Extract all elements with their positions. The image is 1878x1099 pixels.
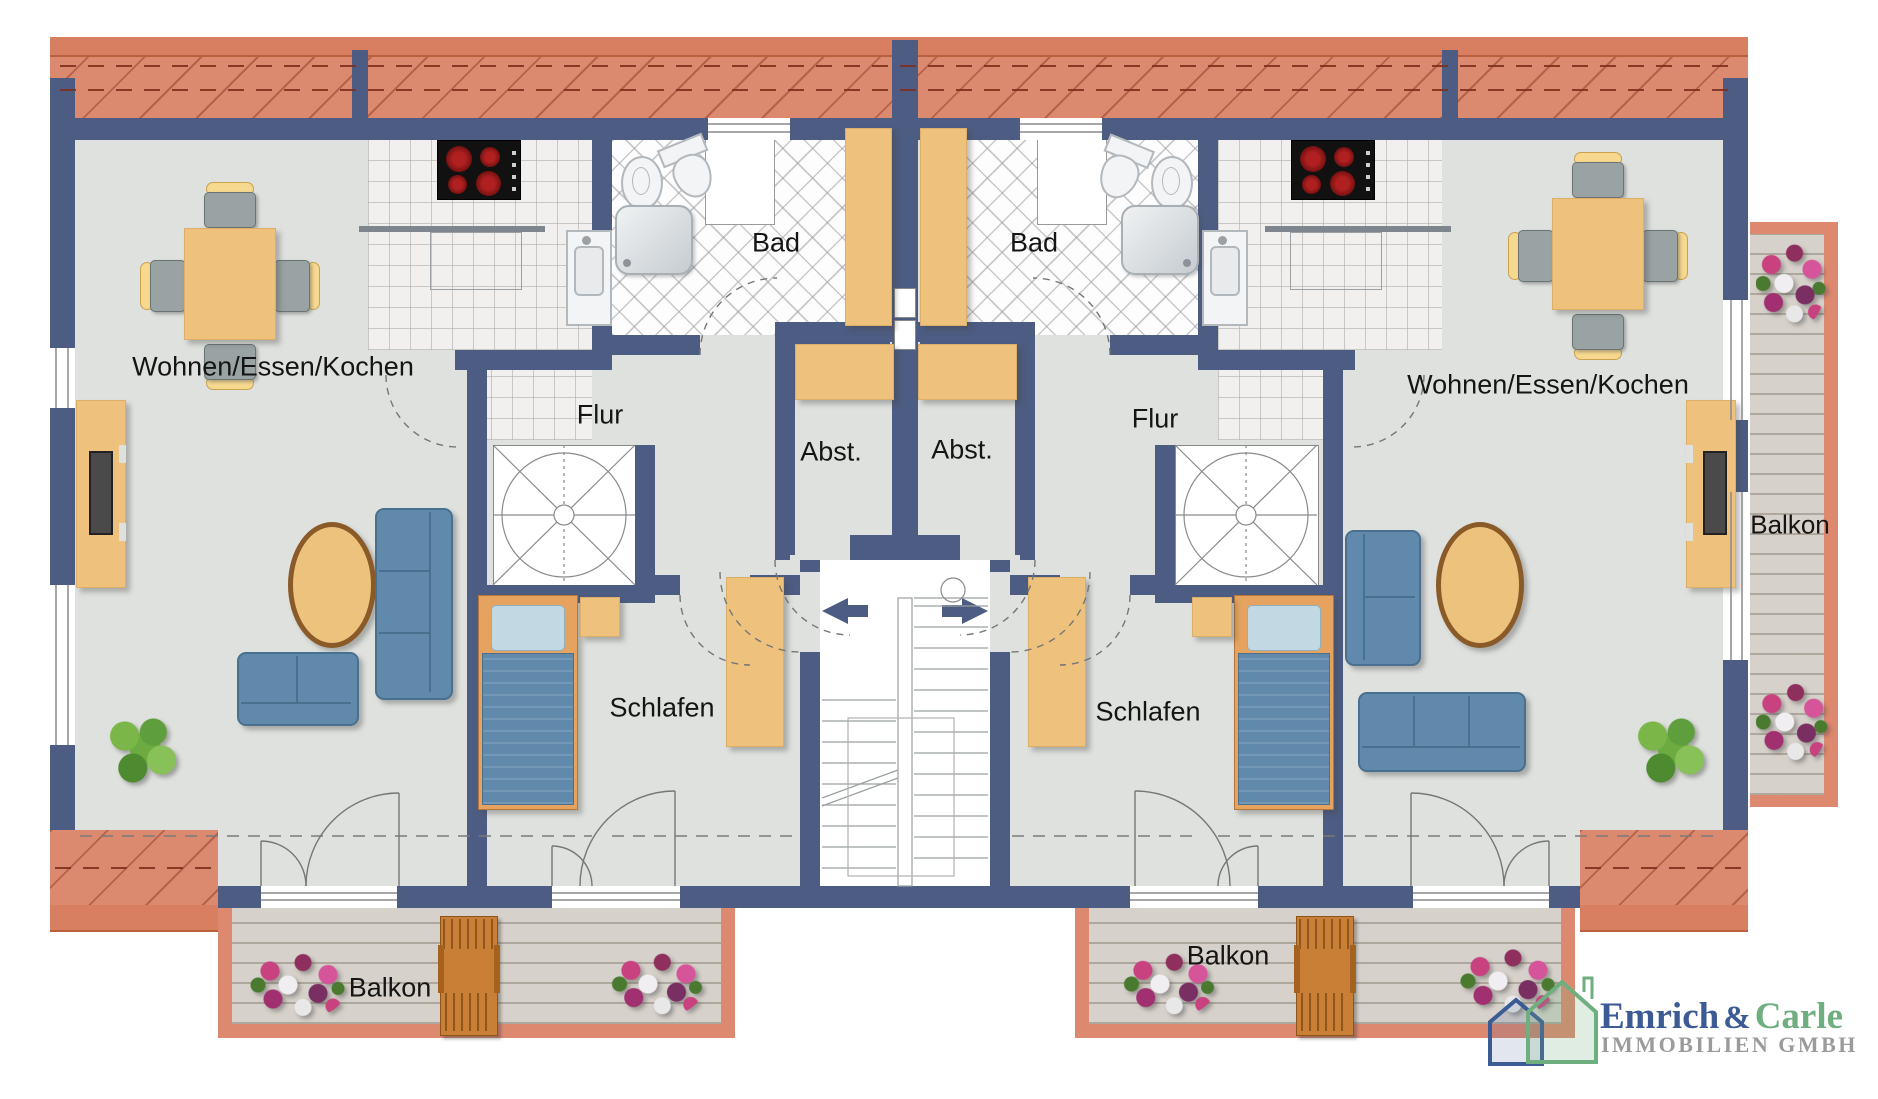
wall-left xyxy=(50,140,75,886)
window-bottom-living-left xyxy=(261,886,397,908)
sideboard-left xyxy=(76,400,126,588)
counter-outline-left xyxy=(430,232,522,290)
floorplan-canvas: Wohnen/Essen/Kochen Wohnen/Essen/Kochen … xyxy=(0,0,1878,1099)
room-label-bedroom-right: Schlafen xyxy=(1095,697,1200,728)
kitchen-sink-right xyxy=(1202,230,1248,326)
room-label-hall-left: Flur xyxy=(577,400,624,431)
wall-bedroom-top-right-a xyxy=(1130,575,1155,595)
sideboard-right xyxy=(1686,400,1736,588)
roof-pier xyxy=(1723,78,1748,140)
chair-icon xyxy=(204,192,256,228)
logo-name-secondary: Carle xyxy=(1755,996,1843,1037)
wall-stairwell-left-b xyxy=(800,652,820,908)
sofa-3seat-right xyxy=(1358,692,1526,772)
kitchen-tiles-right-lower xyxy=(1218,370,1340,440)
vent-shaft xyxy=(894,320,916,350)
room-label-storage-right: Abst. xyxy=(931,435,993,466)
wall-kitchen-hall-left xyxy=(455,350,592,370)
flower-box xyxy=(1756,236,1826,331)
sofa-2seat-right xyxy=(1345,530,1421,666)
wall-entry-top-b xyxy=(850,535,960,560)
wall-entry-top-c xyxy=(1020,535,1035,560)
wall-stairwell-right-b xyxy=(990,652,1010,908)
wall-stairwell-right-a xyxy=(990,560,1010,572)
room-label-balcony-right: Balkon xyxy=(1187,941,1270,972)
wall-bath-bottom-right-a xyxy=(1110,335,1198,355)
wardrobe-bedroom-right xyxy=(1028,577,1086,747)
roof-corner-right xyxy=(1580,830,1748,930)
door-bottom-bedroom-right xyxy=(1130,886,1258,908)
counter-outline-right xyxy=(1290,232,1382,290)
logo-name-primary: Emrich xyxy=(1600,996,1719,1037)
room-label-hall-right: Flur xyxy=(1132,404,1179,435)
wardrobe-bedroom-left xyxy=(726,577,784,747)
skylight-square-right xyxy=(1175,445,1319,587)
kitchen-tiles-left-lower xyxy=(470,370,592,440)
window-bottom-living-right xyxy=(1413,886,1549,908)
wardrobe-bath-left xyxy=(845,128,892,326)
logo-wordmark: Emrich&Carle xyxy=(1600,998,1843,1035)
door-bottom-bedroom-left xyxy=(552,886,680,908)
sofa-2seat-left xyxy=(237,652,359,726)
wall-storage-right-side xyxy=(1015,322,1035,555)
logo-ampersand: & xyxy=(1719,1000,1755,1036)
plant-icon xyxy=(1628,712,1710,792)
flower-box xyxy=(1458,945,1558,1017)
chair-icon xyxy=(1572,314,1624,350)
dining-table-left xyxy=(184,228,276,340)
skylight-square-left xyxy=(493,445,637,587)
arrow-left-icon-shaft xyxy=(848,605,868,617)
flower-box xyxy=(1756,676,1828,768)
window-top-bath-left xyxy=(708,118,790,140)
bath-sink-right xyxy=(1151,156,1193,210)
bed-right xyxy=(1234,595,1334,810)
deck-chair-left xyxy=(440,916,498,1036)
bed-left xyxy=(478,595,578,810)
wall-bath-bottom-left-a xyxy=(612,335,700,355)
kitchen-sink-left xyxy=(566,230,612,326)
shower-right xyxy=(1121,205,1199,275)
arrow-right-icon-shaft xyxy=(942,605,962,617)
house-chimney xyxy=(1584,978,1592,999)
arrow-right-icon xyxy=(962,598,988,624)
room-label-balcony-side: Balkon xyxy=(1750,510,1830,541)
closet-storage-right xyxy=(918,344,1017,400)
plant-icon xyxy=(100,712,182,792)
wardrobe-bath-right xyxy=(920,128,967,326)
roof-pier xyxy=(1442,50,1458,140)
logo-subtitle: IMMOBILIEN GMBH xyxy=(1601,1034,1858,1056)
roof-pier xyxy=(50,78,75,140)
flower-box xyxy=(610,950,705,1018)
room-label-bedroom-left: Schlafen xyxy=(609,693,714,724)
bath-sink-left xyxy=(621,156,663,210)
wall-stairwell-left-a xyxy=(800,560,820,572)
nightstand-right xyxy=(1192,597,1232,637)
window-top-bath-right xyxy=(1020,118,1102,140)
vent-shaft xyxy=(894,288,916,318)
room-label-storage-left: Abst. xyxy=(800,437,862,468)
arrow-left-icon xyxy=(822,598,848,624)
wall-bedroom-top-left-a xyxy=(655,575,680,595)
closet-storage-left xyxy=(795,344,894,400)
nightstand-left xyxy=(580,597,620,637)
roof-corner-left xyxy=(50,830,218,930)
room-label-bath-left: Bad xyxy=(752,228,800,259)
wall-storage-left-side xyxy=(775,322,795,555)
wall-entry-top-a xyxy=(775,535,790,560)
chair-icon xyxy=(274,260,310,312)
chair-icon xyxy=(1518,230,1554,282)
dining-table-right xyxy=(1552,198,1644,310)
window-left-lower xyxy=(50,585,75,745)
wall-kitchen-hall-right xyxy=(1218,350,1355,370)
deck-chair-right xyxy=(1296,916,1354,1036)
cooktop-left xyxy=(437,140,521,200)
oval-table-right xyxy=(1436,522,1524,648)
roof-pier xyxy=(352,50,368,140)
window-left-upper xyxy=(50,348,75,408)
room-label-bath-right: Bad xyxy=(1010,228,1058,259)
shower-left xyxy=(615,205,693,275)
wall-skylight-left-right xyxy=(1155,445,1175,595)
chair-icon xyxy=(150,260,186,312)
chair-icon xyxy=(1572,162,1624,198)
chair-icon xyxy=(1642,230,1678,282)
cooktop-right xyxy=(1291,140,1375,200)
wall-skylight-right-left xyxy=(635,445,655,595)
room-label-living-right: Wohnen/Essen/Kochen xyxy=(1407,370,1689,401)
room-label-balcony-left: Balkon xyxy=(349,973,432,1004)
sofa-3seat-left xyxy=(375,508,453,700)
flower-box xyxy=(248,950,348,1020)
room-label-living-left: Wohnen/Essen/Kochen xyxy=(132,352,414,383)
oval-table-left xyxy=(288,522,376,648)
